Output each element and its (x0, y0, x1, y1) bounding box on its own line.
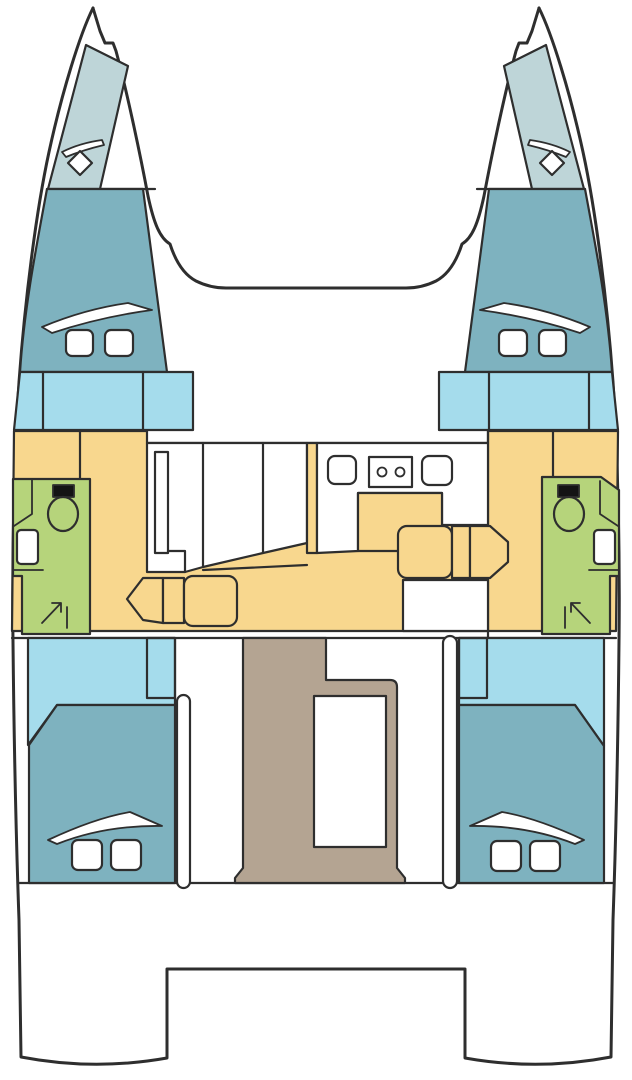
nav-seat-middle (452, 526, 470, 578)
floorplan-svg (0, 0, 632, 1080)
port-aft-hatch-2 (111, 840, 141, 870)
starboard-sink (594, 530, 615, 564)
starboard-aft-hatch-1 (491, 841, 521, 871)
galley-stove (369, 457, 412, 487)
port-forward-hatch-1 (66, 330, 93, 356)
starboard-toilet-tank (558, 485, 579, 497)
starboard-aft-cabin (443, 636, 604, 888)
starboard-wardrobe-block (439, 372, 618, 430)
port-sliding-door (177, 695, 190, 888)
settee-seat (184, 576, 237, 626)
galley-sink-1 (328, 456, 356, 484)
nav-seat (398, 526, 452, 578)
starboard-aft-hatch-2 (530, 841, 560, 871)
cockpit-table (314, 696, 386, 847)
port-forward-hatch-2 (105, 330, 133, 356)
stove-burner-1 (378, 468, 387, 477)
port-sink (17, 530, 38, 564)
settee-middle (163, 578, 184, 623)
catamaran-floorplan (0, 0, 632, 1080)
starboard-sliding-door (443, 636, 457, 888)
galley-sink-2 (422, 456, 452, 485)
salon-pillar (307, 443, 317, 553)
starboard-forward-hatch-2 (499, 330, 527, 356)
starboard-forward-wardrobe (439, 372, 618, 430)
companionway-landing (403, 580, 488, 631)
stove-burner-2 (396, 468, 405, 477)
starboard-head (542, 477, 619, 634)
port-forward-wardrobe (14, 372, 193, 430)
port-aft-cabin (28, 638, 190, 888)
salon-shelf-strip (155, 452, 168, 553)
port-forward-cabin (20, 189, 167, 372)
starboard-forward-cabin (465, 189, 612, 372)
port-head (13, 479, 90, 634)
port-aft-hatch-1 (72, 840, 102, 870)
starboard-forward-hatch-1 (539, 330, 566, 356)
port-toilet-tank (53, 485, 74, 497)
port-wardrobe-block (14, 372, 193, 430)
